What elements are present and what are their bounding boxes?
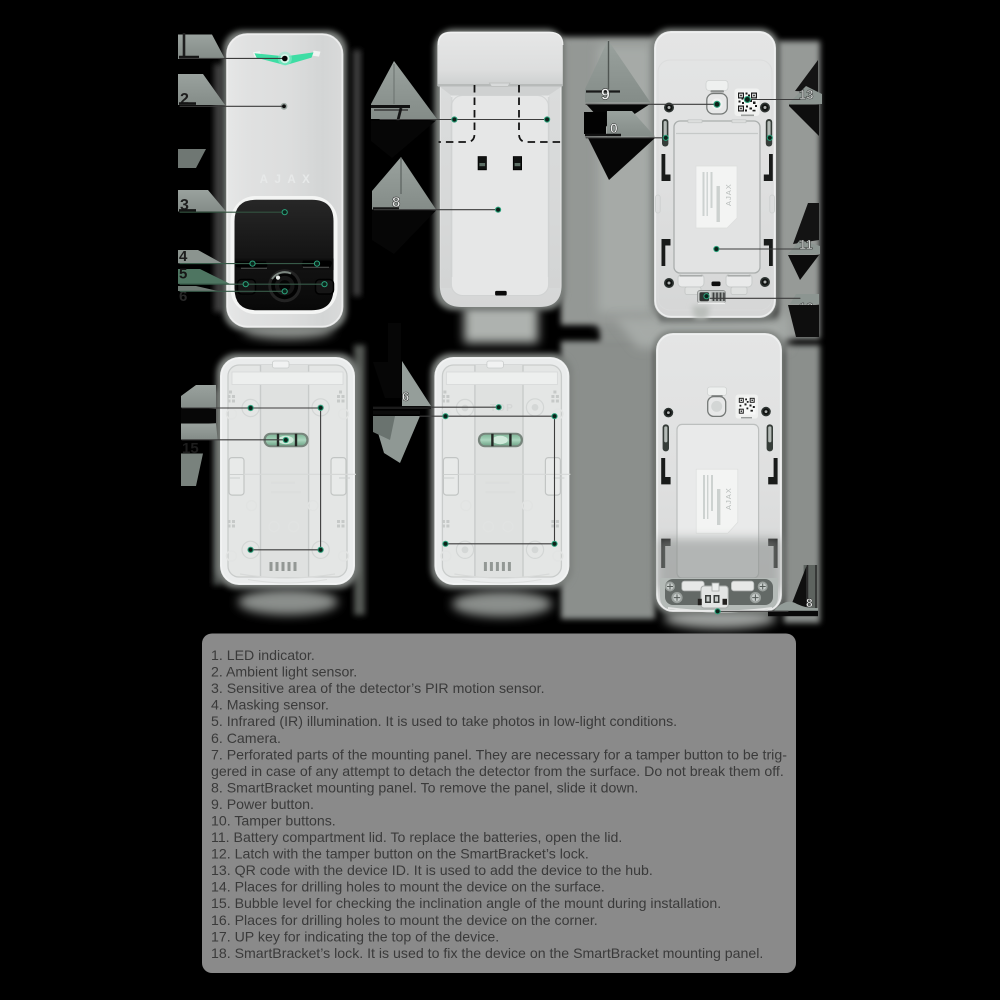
svg-text:6: 6 xyxy=(402,389,409,404)
svg-text:13. QR code with the device ID: 13. QR code with the device ID. It is us… xyxy=(211,862,653,878)
svg-text:4: 4 xyxy=(179,248,188,265)
svg-text:5. Infrared (IR) illumination.: 5. Infrared (IR) illumination. It is use… xyxy=(211,713,677,729)
svg-text:0: 0 xyxy=(610,120,618,136)
svg-text:AJAX: AJAX xyxy=(260,174,317,186)
svg-text:13: 13 xyxy=(799,87,813,102)
svg-text:5: 5 xyxy=(179,266,187,283)
svg-text:TOP: TOP xyxy=(490,403,514,414)
svg-text:9. Power button.: 9. Power button. xyxy=(211,796,314,812)
svg-text:11. Battery compartment lid. T: 11. Battery compartment lid. To replace … xyxy=(211,829,622,845)
svg-text:8. SmartBracket mounting panel: 8. SmartBracket mounting panel. To remov… xyxy=(211,779,638,795)
svg-text:12. Latch with the tamper butt: 12. Latch with the tamper button on the … xyxy=(211,846,589,862)
svg-text:3. Sensitive area of the detec: 3. Sensitive area of the detector’s PIR … xyxy=(211,680,545,696)
svg-text:gered in case of any attempt t: gered in case of any attempt to detach t… xyxy=(211,763,784,779)
svg-text:14. Places for drilling holes: 14. Places for drilling holes to mount t… xyxy=(211,879,605,895)
svg-text:18. SmartBracket’s lock. It is: 18. SmartBracket’s lock. It is used to f… xyxy=(211,945,763,961)
svg-text:6. Camera.: 6. Camera. xyxy=(211,730,281,746)
svg-text:7. Perforated parts of the mou: 7. Perforated parts of the mounting pane… xyxy=(211,746,787,762)
svg-text:1. LED indicator.: 1. LED indicator. xyxy=(211,647,315,663)
svg-text:2: 2 xyxy=(180,91,189,108)
svg-text:AJAX: AJAX xyxy=(724,487,733,510)
svg-text:10. Tamper buttons.: 10. Tamper buttons. xyxy=(211,813,336,829)
svg-text:15. Bubble level for checking: 15. Bubble level for checking the inclin… xyxy=(211,895,721,911)
svg-text:4. Masking sensor.: 4. Masking sensor. xyxy=(211,697,329,713)
svg-text:17. UP key for indicating the: 17. UP key for indicating the top of the… xyxy=(211,928,499,944)
svg-text:16. Places for drilling holes: 16. Places for drilling holes to mount t… xyxy=(211,912,598,928)
svg-text:9: 9 xyxy=(601,87,610,104)
svg-text:AJAX: AJAX xyxy=(724,183,733,206)
svg-text:8: 8 xyxy=(806,596,813,610)
svg-text:6: 6 xyxy=(179,288,187,305)
svg-text:11: 11 xyxy=(799,237,813,252)
svg-text:2. Ambient light sensor.: 2. Ambient light sensor. xyxy=(211,664,357,680)
